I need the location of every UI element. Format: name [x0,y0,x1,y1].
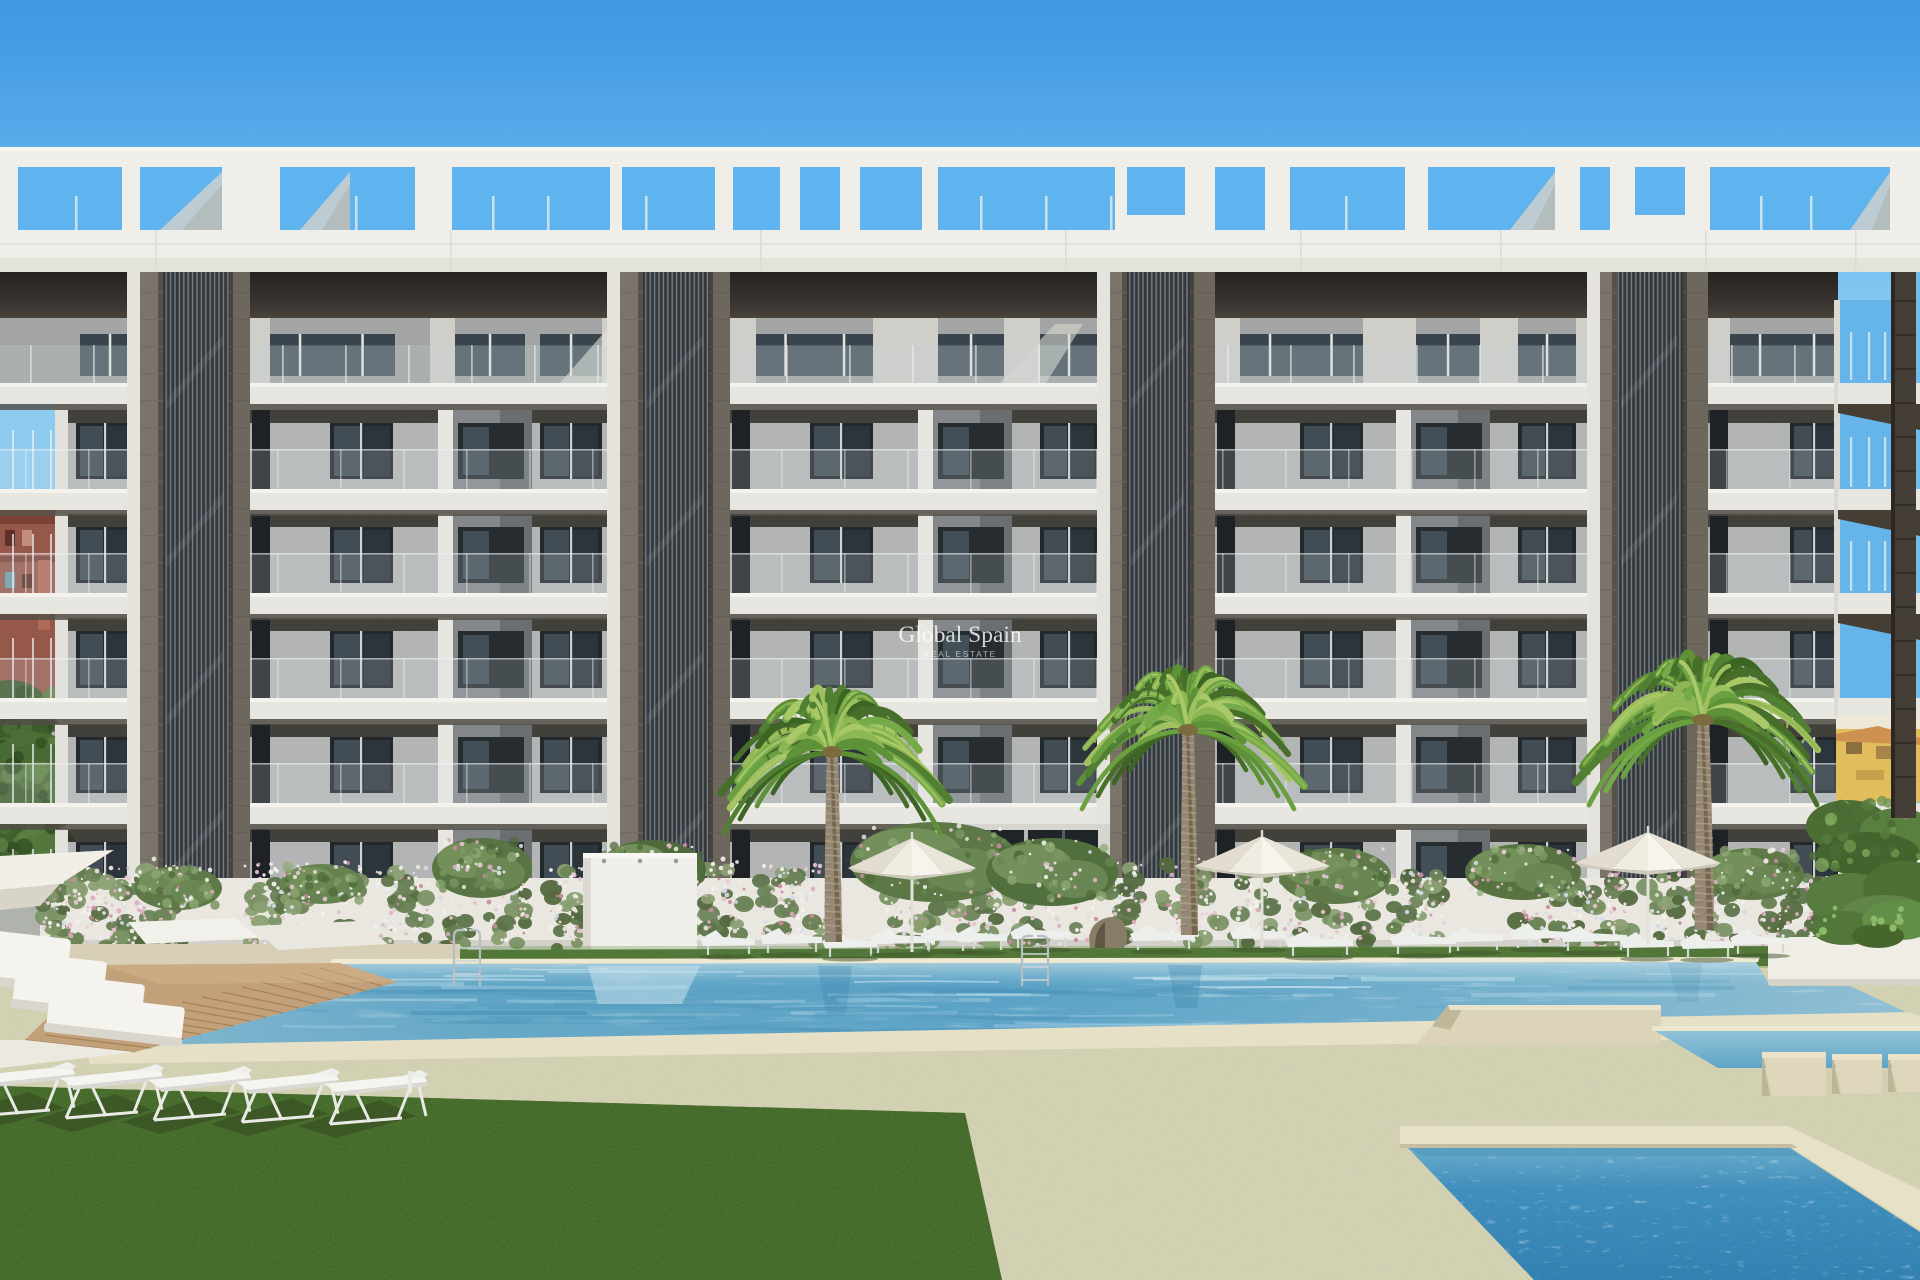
svg-text:REAL ESTATE: REAL ESTATE [923,649,997,659]
svg-text:Global Spain: Global Spain [898,622,1022,648]
